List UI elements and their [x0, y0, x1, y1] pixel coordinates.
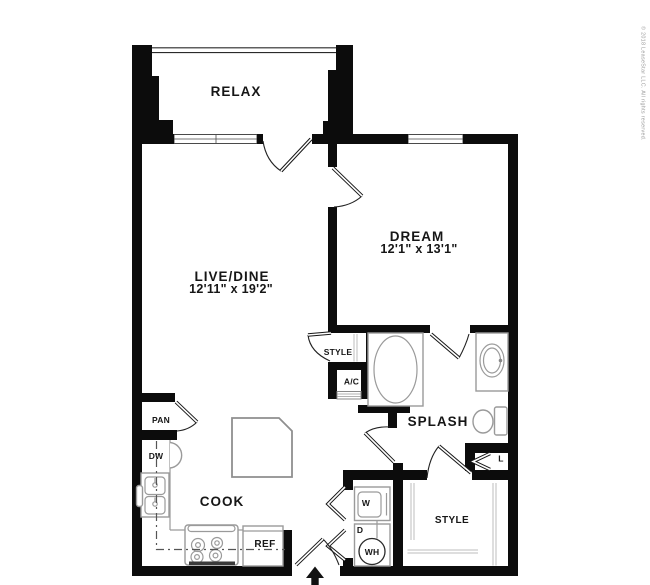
dryer-label: D	[357, 525, 363, 535]
kitchen-sink	[137, 473, 170, 517]
hvac-closet-label: A/C	[344, 377, 359, 387]
floorplan-page: RELAX LIVE/DINE 12'11" x 19'2" DREAM 12'…	[0, 0, 650, 585]
refrigerator-label: REF	[254, 539, 275, 550]
bathroom-vanity	[476, 333, 508, 391]
water-heater-label: WH	[365, 547, 380, 557]
dishwasher-label: DW	[149, 451, 164, 461]
kitchen-label: COOK	[200, 494, 245, 509]
bedroom-closet-label: STYLE	[324, 347, 353, 357]
balcony-railing	[133, 48, 351, 53]
walkin-closet-door	[427, 446, 471, 478]
bathtub	[368, 333, 423, 406]
pantry-label: PAN	[152, 415, 170, 425]
bathroom-door	[431, 334, 469, 358]
bathroom-label: SPLASH	[408, 414, 469, 429]
pantry-door	[176, 402, 197, 431]
toilet	[473, 407, 507, 435]
washer	[355, 487, 391, 521]
washer-label: W	[362, 498, 371, 508]
floorplan-canvas: RELAX LIVE/DINE 12'11" x 19'2" DREAM 12'…	[0, 0, 650, 585]
balcony-door	[263, 139, 311, 171]
ac-louver-vent	[337, 392, 361, 400]
walkin-closet-label: STYLE	[435, 515, 469, 526]
living-dining-dimensions: 12'11" x 19'2"	[189, 282, 273, 296]
bedroom-dimensions: 12'1" x 13'1"	[380, 242, 457, 256]
linen-closet-bifold-door	[473, 454, 490, 470]
stove	[185, 525, 238, 565]
hallway-door	[365, 427, 394, 462]
bedroom-door	[333, 168, 362, 207]
kitchen-island	[232, 418, 292, 477]
balcony-label: RELAX	[211, 84, 262, 99]
entry-arrow-icon	[306, 567, 324, 585]
copyright-text: © 2018 LeaseStar LLC. All rights reserve…	[640, 26, 647, 141]
walls	[132, 45, 518, 576]
room-labels: RELAX LIVE/DINE 12'11" x 19'2" DREAM 12'…	[152, 84, 504, 526]
fixtures	[137, 333, 509, 566]
living-window	[174, 135, 257, 144]
bedroom-window	[408, 135, 463, 144]
linen-closet-label: L	[498, 454, 503, 464]
